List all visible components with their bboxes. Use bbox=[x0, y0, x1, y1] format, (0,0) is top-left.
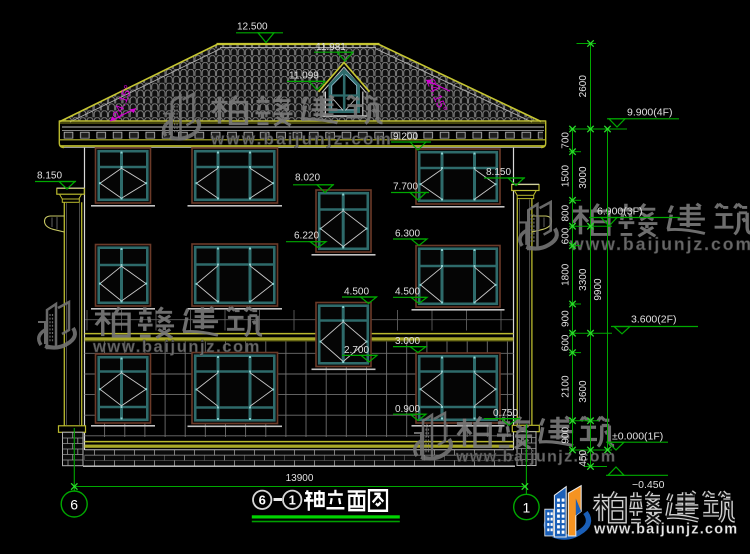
svg-text:−0.450: −0.450 bbox=[632, 479, 665, 491]
svg-text:www.baijunjz.com: www.baijunjz.com bbox=[593, 522, 738, 538]
svg-text:±0.000(1F): ±0.000(1F) bbox=[612, 431, 663, 443]
svg-text:9.200: 9.200 bbox=[393, 132, 418, 143]
svg-text:600: 600 bbox=[561, 227, 572, 244]
svg-text:7.700: 7.700 bbox=[393, 182, 418, 193]
svg-text:9900: 9900 bbox=[593, 278, 604, 301]
svg-text:13900: 13900 bbox=[286, 473, 314, 484]
svg-text:1800: 1800 bbox=[561, 263, 572, 286]
svg-text:www.baijunjz.com: www.baijunjz.com bbox=[210, 130, 393, 149]
svg-text:3000: 3000 bbox=[578, 166, 589, 189]
svg-text:1: 1 bbox=[289, 493, 296, 508]
svg-text:900: 900 bbox=[561, 427, 572, 444]
svg-text:1500: 1500 bbox=[561, 164, 572, 187]
svg-text:8.020: 8.020 bbox=[295, 173, 320, 184]
svg-text:6.220: 6.220 bbox=[294, 231, 319, 242]
svg-text:700: 700 bbox=[561, 132, 572, 149]
svg-text:11.099: 11.099 bbox=[289, 71, 319, 82]
svg-text:2100: 2100 bbox=[561, 375, 572, 398]
svg-text:0.900: 0.900 bbox=[395, 404, 420, 415]
svg-text:6.900(3F): 6.900(3F) bbox=[597, 206, 643, 218]
svg-text:900: 900 bbox=[561, 310, 572, 327]
svg-text:2600: 2600 bbox=[578, 75, 589, 98]
svg-text:9.900(4F): 9.900(4F) bbox=[627, 107, 673, 119]
svg-text:1: 1 bbox=[523, 500, 531, 516]
svg-text:www.baijunjz.com: www.baijunjz.com bbox=[92, 338, 261, 356]
svg-text:4.500: 4.500 bbox=[344, 287, 369, 298]
svg-text:www.baijunjz.com: www.baijunjz.com bbox=[569, 234, 750, 254]
svg-text:8.150: 8.150 bbox=[37, 171, 62, 182]
svg-text:8.150: 8.150 bbox=[486, 167, 511, 178]
svg-text:6: 6 bbox=[259, 493, 266, 508]
svg-text:4.500: 4.500 bbox=[395, 287, 420, 298]
svg-text:3.000: 3.000 bbox=[395, 336, 420, 347]
svg-text:6.300: 6.300 bbox=[395, 229, 420, 240]
svg-text:450: 450 bbox=[578, 450, 589, 467]
svg-text:2.700: 2.700 bbox=[344, 345, 369, 356]
svg-text:3.600(2F): 3.600(2F) bbox=[631, 314, 677, 326]
svg-text:12.500: 12.500 bbox=[237, 22, 268, 33]
svg-text:11.981: 11.981 bbox=[316, 42, 346, 53]
svg-text:3300: 3300 bbox=[578, 268, 589, 291]
svg-text:6: 6 bbox=[70, 497, 78, 513]
svg-text:800: 800 bbox=[561, 204, 572, 221]
svg-text:600: 600 bbox=[561, 334, 572, 351]
svg-text:3600: 3600 bbox=[578, 380, 589, 403]
svg-text:0.750: 0.750 bbox=[493, 408, 518, 419]
